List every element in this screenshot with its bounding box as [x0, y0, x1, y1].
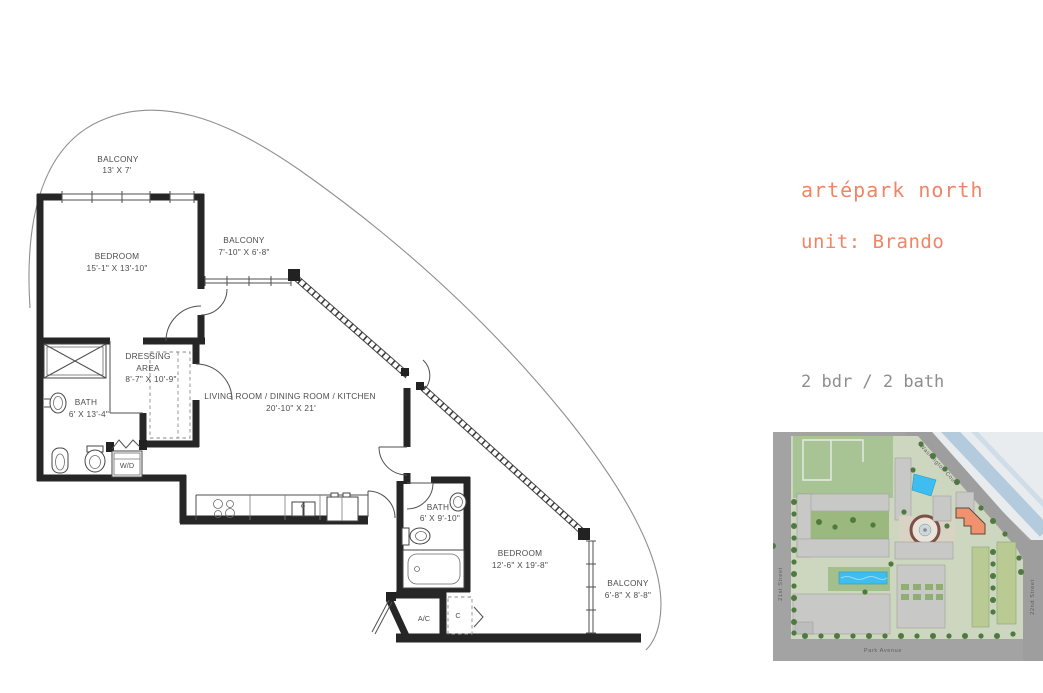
bath1-dims: 6' X 13'-4": [69, 409, 109, 419]
living-label: LIVING ROOM / DINING ROOM / KITCHEN: [204, 391, 375, 401]
brochure-page: BALCONY 13' X 7' BEDROOM 15'-1" X 13'-10…: [0, 0, 1043, 693]
garden-building: [997, 542, 1016, 624]
bidet: [52, 448, 68, 473]
bedroom2-label: BEDROOM: [498, 548, 543, 558]
balcony2-dims: 7'-10" X 6'-8": [218, 247, 269, 257]
sink-faucet: [44, 399, 50, 407]
living-dims: 20'-10" X 21': [266, 403, 316, 413]
site-plan-map: Washington Court 21st Street 22nd Street…: [773, 432, 1043, 661]
bath2-dims: 6' X 9'-10": [420, 513, 460, 523]
green-field: [793, 436, 893, 498]
balcony3-dims: 6'-8" X 8'-8": [605, 590, 651, 600]
door-swings: [166, 289, 433, 634]
dressing-label-2: AREA: [136, 363, 160, 373]
pool: [839, 572, 887, 584]
sink: [50, 393, 66, 413]
balcony2-label: BALCONY: [223, 235, 265, 245]
spec-bed-bath: 2 bdr / 2 bath: [801, 366, 985, 399]
kitchen-sink-left: [292, 502, 303, 516]
refrigerator-handle: [331, 493, 338, 497]
burner: [227, 501, 234, 508]
balcony3-label: BALCONY: [607, 578, 649, 588]
building-annex: [795, 622, 813, 634]
laundry-label: W/D: [120, 461, 134, 470]
bath2-label: BATH: [427, 502, 450, 512]
balcony1-dims: 13' X 7': [102, 165, 131, 175]
toilet2-tank: [402, 528, 409, 545]
dressing-dims: 8'-7" X 10'-9": [125, 374, 176, 384]
fountain-center: [923, 528, 927, 532]
balcony-boundary-curve: [29, 110, 661, 650]
kitchen-sink-right: [304, 502, 315, 516]
building: [933, 496, 951, 521]
balcony1-label: BALCONY: [97, 154, 139, 164]
bedroom2-dims: 12'-6" X 19'-8": [492, 560, 548, 570]
bedroom1-label: BEDROOM: [95, 251, 140, 261]
bath1-label: BATH: [75, 397, 98, 407]
wall-anchor: [139, 440, 147, 450]
refrigerator-handle: [343, 493, 350, 497]
street-label-park: Park Avenue: [864, 648, 902, 654]
courtyard-garden: [811, 511, 889, 539]
toilet2-bowl: [410, 528, 430, 544]
wall-anchor: [578, 528, 590, 540]
burner: [214, 500, 223, 509]
street-label-21st: 21st Street: [778, 567, 784, 601]
street-label-22nd: 22nd Street: [1030, 579, 1036, 615]
floor-plan-drawing: BALCONY 13' X 7' BEDROOM 15'-1" X 13'-10…: [0, 0, 740, 693]
wall-anchor: [416, 382, 424, 390]
ac-label: A/C: [418, 614, 430, 623]
dressing-label-1: DRESSING: [125, 351, 170, 361]
refrigerator: [327, 497, 358, 521]
unit-name: unit: Brando: [801, 231, 944, 253]
closet-label: C: [455, 611, 460, 620]
wall-anchor: [288, 269, 300, 281]
building: [797, 539, 889, 557]
sink2: [450, 493, 466, 511]
wall-anchor: [386, 592, 396, 601]
project-title: artépark north: [801, 178, 984, 202]
bedroom1-dims: 15'-1" X 13'-10": [86, 263, 147, 273]
building: [895, 542, 953, 559]
garden-building: [972, 547, 989, 627]
wall-anchor: [401, 368, 409, 376]
